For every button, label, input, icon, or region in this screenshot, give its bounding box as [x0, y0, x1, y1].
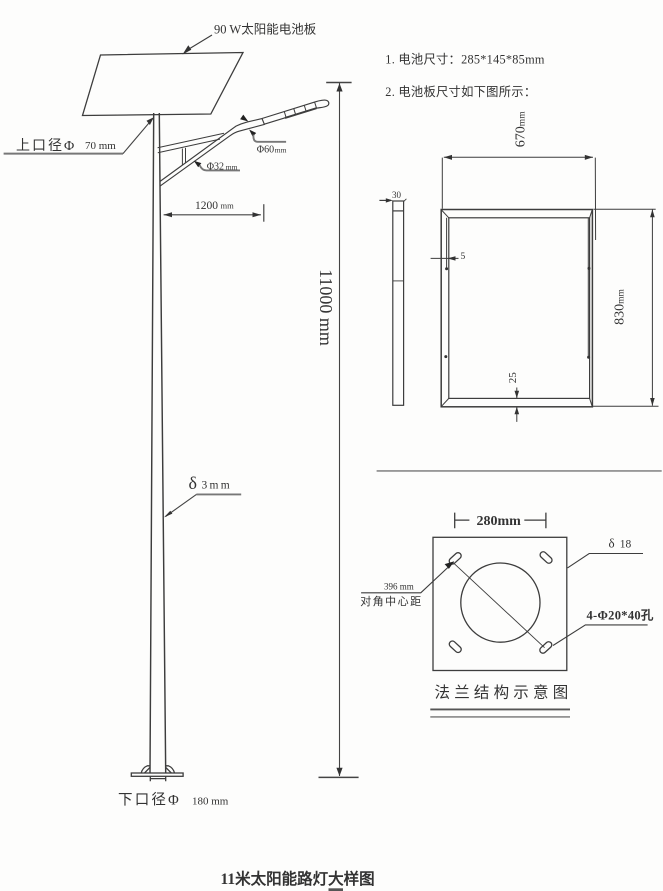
svg-text:830mm: 830mm [613, 289, 628, 325]
svg-text:Φ32: Φ32 [207, 161, 224, 172]
svg-text:法兰结构示意图: 法兰结构示意图 [435, 683, 573, 702]
svg-text:2. 电池板尺寸如下图所示：: 2. 电池板尺寸如下图所示： [385, 84, 536, 99]
svg-text:180 mm: 180 mm [192, 796, 229, 808]
svg-text:18: 18 [620, 539, 632, 551]
svg-text:mm: mm [226, 162, 238, 171]
svg-text:30: 30 [392, 190, 402, 200]
svg-text:5: 5 [461, 252, 466, 262]
svg-text:3mm: 3mm [202, 480, 233, 492]
svg-text:280mm: 280mm [477, 514, 522, 529]
svg-text:70 mm: 70 mm [85, 140, 116, 152]
svg-text:mm: mm [221, 201, 235, 211]
svg-text:1. 电池尺寸：285*145*85mm: 1. 电池尺寸：285*145*85mm [385, 53, 545, 67]
svg-text:上口径Φ: 上口径Φ [16, 138, 76, 154]
svg-text:δ: δ [189, 473, 197, 493]
svg-text:396 mm: 396 mm [384, 582, 414, 592]
svg-text:4-Φ20*40孔: 4-Φ20*40孔 [587, 609, 654, 623]
svg-text:90 W太阳能电池板: 90 W太阳能电池板 [214, 22, 317, 37]
svg-text:下口径Φ: 下口径Φ [118, 792, 181, 809]
svg-text:对角中心距: 对角中心距 [360, 594, 423, 608]
svg-text:11000 mm: 11000 mm [316, 269, 336, 346]
svg-text:1200: 1200 [195, 200, 218, 212]
svg-text:25: 25 [507, 372, 519, 384]
svg-text:δ: δ [609, 536, 615, 551]
svg-text:11米太阳能路灯大样图: 11米太阳能路灯大样图 [221, 869, 375, 888]
svg-text:Φ60: Φ60 [257, 145, 274, 156]
svg-text:mm: mm [275, 145, 287, 154]
svg-text:670mm: 670mm [514, 111, 529, 147]
